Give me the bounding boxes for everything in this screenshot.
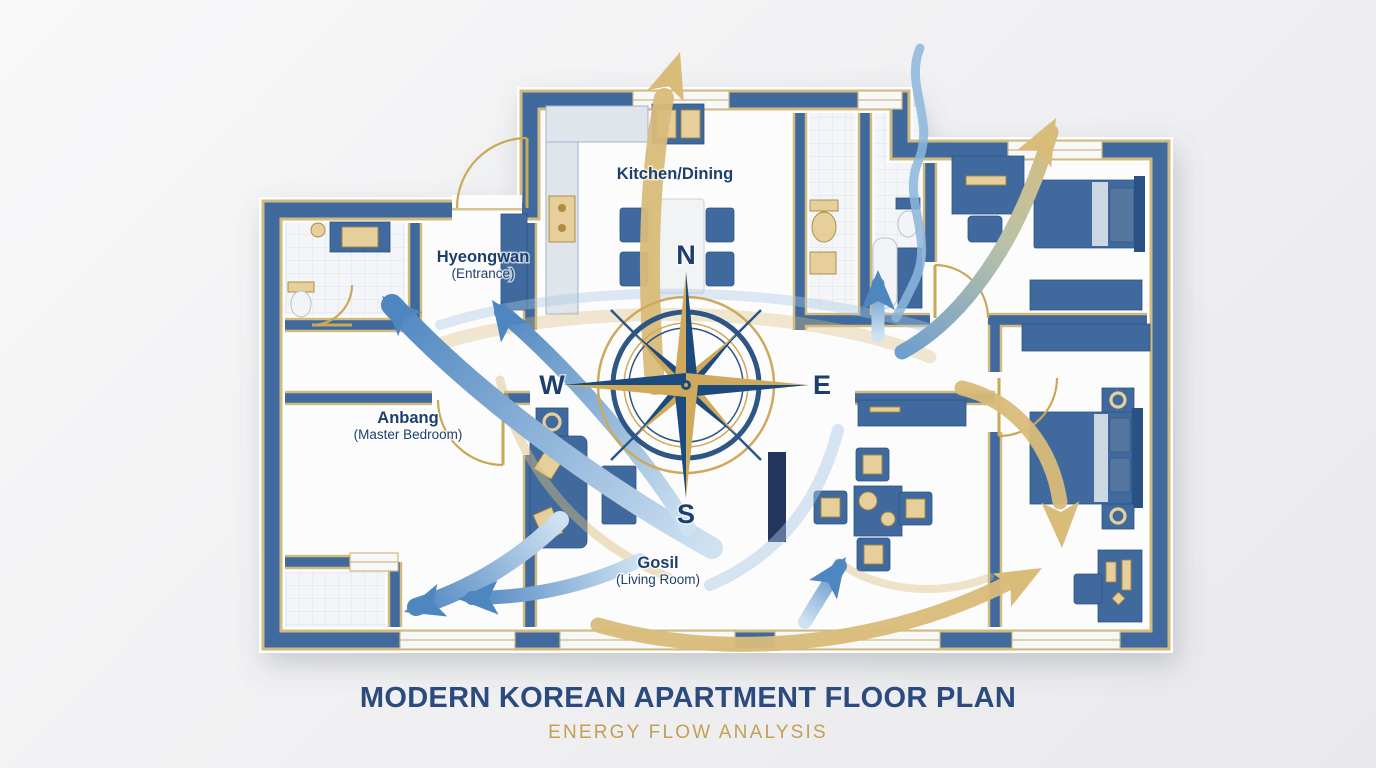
kitchen-label: Kitchen/Dining bbox=[617, 165, 733, 183]
poster: N S E W Kitchen/Dining Hyeongwan (Entran… bbox=[0, 0, 1376, 768]
bed bbox=[1034, 176, 1145, 252]
plate bbox=[881, 512, 895, 526]
floor-cushion bbox=[814, 491, 847, 524]
master-bedroom-sublabel: (Master Bedroom) bbox=[354, 427, 463, 442]
wardrobe bbox=[1022, 324, 1150, 351]
compass-north-label: N bbox=[676, 240, 696, 270]
dining-chair bbox=[706, 252, 734, 286]
console bbox=[858, 400, 966, 426]
dresser bbox=[1098, 550, 1142, 622]
poster-title: MODERN KOREAN APARTMENT FLOOR PLAN bbox=[0, 682, 1376, 715]
kitchen-counter bbox=[546, 106, 648, 142]
sink bbox=[810, 252, 836, 274]
floor-cushion bbox=[857, 538, 890, 571]
compass-east-label: E bbox=[813, 370, 831, 400]
living-room-sublabel: (Living Room) bbox=[616, 572, 700, 587]
toilet-bowl bbox=[291, 291, 311, 317]
living-room-label: Gosil bbox=[637, 554, 678, 572]
poster-subtitle: ENERGY FLOW ANALYSIS bbox=[0, 722, 1376, 744]
stove bbox=[549, 196, 575, 242]
entrance-label: Hyeongwan bbox=[437, 248, 530, 266]
low-table bbox=[854, 486, 902, 536]
floor-cushion bbox=[856, 448, 889, 481]
dining-chair bbox=[706, 208, 734, 242]
toilet-tank bbox=[810, 200, 838, 211]
entrance-threshold bbox=[452, 208, 522, 211]
desk-chair bbox=[968, 216, 1002, 242]
toilet-bowl bbox=[812, 212, 836, 242]
plate bbox=[859, 492, 877, 510]
laptop bbox=[966, 176, 1006, 185]
wash-basin bbox=[342, 227, 378, 247]
floor-cushion bbox=[899, 492, 932, 525]
floor-plan-canvas: N S E W Kitchen/Dining Hyeongwan (Entran… bbox=[0, 0, 1376, 768]
master-bedroom-label: Anbang bbox=[377, 409, 438, 427]
compass-west-label: W bbox=[539, 370, 565, 400]
compass-south-label: S bbox=[677, 499, 695, 529]
low-cabinet bbox=[1030, 280, 1142, 310]
chair bbox=[1074, 574, 1102, 604]
title-block: MODERN KOREAN APARTMENT FLOOR PLAN ENERG… bbox=[0, 682, 1376, 744]
shower-head bbox=[311, 223, 325, 237]
entrance-sublabel: (Entrance) bbox=[451, 266, 514, 281]
